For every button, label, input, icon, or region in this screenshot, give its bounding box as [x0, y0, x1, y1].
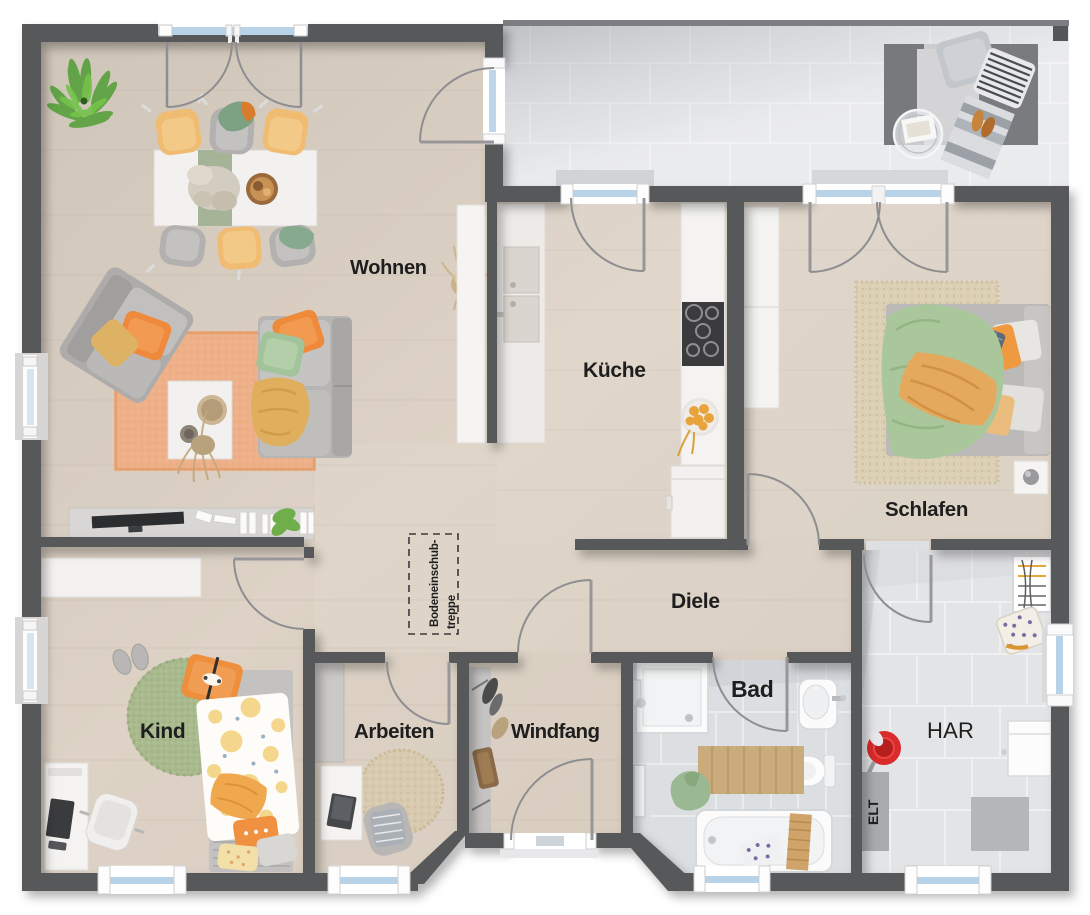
svg-text:Bad: Bad: [731, 676, 774, 702]
svg-text:HAR: HAR: [927, 718, 974, 743]
svg-text:Arbeiten: Arbeiten: [354, 720, 434, 743]
svg-text:Wohnen: Wohnen: [350, 257, 427, 279]
svg-text:Bodeneinschub-: Bodeneinschub-: [429, 539, 441, 627]
svg-text:ELT: ELT: [865, 799, 881, 825]
svg-text:Kind: Kind: [140, 720, 185, 743]
svg-text:treppe: treppe: [446, 595, 458, 629]
svg-text:Schlafen: Schlafen: [885, 498, 968, 521]
svg-text:Küche: Küche: [583, 359, 646, 382]
svg-text:Diele: Diele: [671, 590, 720, 613]
svg-text:Windfang: Windfang: [511, 720, 599, 743]
